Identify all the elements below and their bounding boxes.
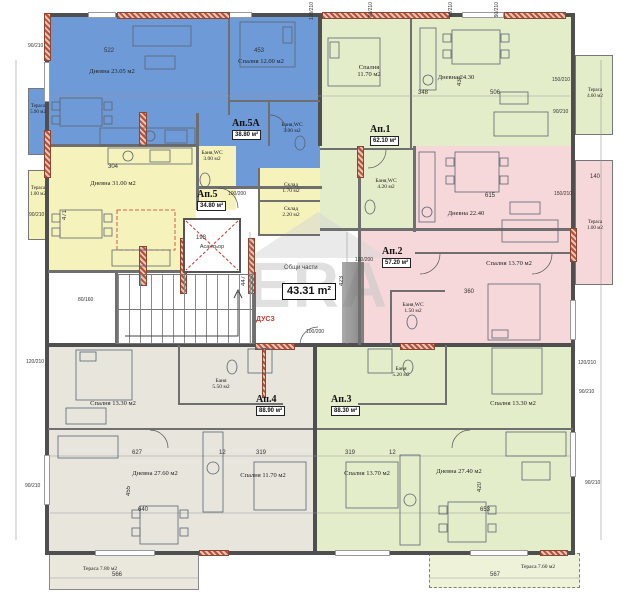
apartment-area-ap4: 88.90 м² — [256, 406, 285, 416]
room-label: Баня,WC 3.00 м2 — [192, 150, 232, 163]
wall-segment — [445, 345, 447, 405]
dimension-label: 90/210 — [25, 484, 40, 489]
dimension-label: 615 — [485, 193, 495, 199]
dimension-label: 420 — [477, 482, 483, 492]
brick-pier — [199, 550, 229, 556]
room-label: Спалня 13.30 м2 — [482, 400, 544, 407]
apartment-label-ap5a: Ап.5А — [232, 118, 260, 129]
room-label: Дневна 22.40 — [438, 210, 494, 217]
region-ap3-terrace — [429, 553, 580, 588]
wall-segment — [178, 345, 180, 405]
room-label: Тераса 4.60 м2 — [582, 88, 608, 100]
region-ap4-main — [45, 345, 315, 553]
common-area-value: 43.31 m² — [282, 283, 336, 300]
brick-pier — [262, 348, 266, 398]
dimension-label: 455 — [126, 486, 132, 496]
wall-segment — [48, 428, 313, 430]
brick-pier — [255, 343, 295, 350]
dimension-label: 150/210 — [554, 192, 572, 197]
dimension-label: 100/200 — [306, 330, 324, 335]
dimension-label: 566 — [112, 572, 122, 578]
dimension-label: 140 — [590, 174, 600, 180]
elevator-label: Асансьор — [185, 244, 239, 250]
window-opening — [570, 432, 576, 477]
wall-segment — [258, 200, 320, 202]
wall-segment — [320, 148, 415, 150]
wall-segment — [230, 100, 320, 102]
room-label: Спалня 11.70 м2 — [348, 64, 390, 79]
room-label: Дневна 27.60 м2 — [124, 470, 186, 477]
brick-pier — [117, 12, 230, 19]
room-label: Дневна 27.40 м2 — [428, 468, 490, 475]
dimension-label: 522 — [104, 48, 114, 54]
apartment-area-ap5a: 38.80 м² — [232, 130, 261, 140]
dimension-label: 319 — [256, 450, 266, 456]
brick-pier — [44, 13, 51, 61]
wall-segment — [48, 144, 198, 147]
wall-segment — [258, 168, 260, 236]
region-ap5-main — [48, 146, 196, 272]
window-opening — [470, 550, 528, 556]
brick-pier — [504, 12, 566, 19]
room-label: Тераса 5.90 м2 — [27, 104, 49, 116]
apartment-label-ap3: Ап.3 — [331, 394, 351, 405]
wall-segment — [318, 13, 322, 146]
apartment-area-ap5: 34.80 м² — [197, 201, 226, 211]
room-label: Баня,WC 1.50 м2 — [394, 302, 432, 315]
window-opening — [570, 300, 576, 340]
room-label: Спалня 12.00 м2 — [230, 58, 292, 65]
brick-pier — [44, 130, 51, 178]
dimension-label: 100/200 — [355, 258, 373, 263]
room-label: Дневна 31.00 м2 — [82, 180, 144, 187]
wall-segment — [268, 100, 270, 146]
room-label: Дневна 24.30 — [428, 74, 484, 81]
dimension-label: 434 — [457, 76, 463, 86]
brick-pier — [540, 550, 568, 556]
dimension-label: 198 — [196, 235, 206, 241]
room-label: Спалня 13.70 м2 — [336, 470, 398, 477]
room-label: Баня,WC 4.20 м2 — [366, 178, 406, 191]
room-label: Склад 2.20 м2 — [274, 206, 308, 219]
wall-segment — [390, 290, 392, 345]
dimension-label: 120/210 — [26, 360, 44, 365]
window-opening — [88, 12, 116, 18]
dimension-label: 90/210 — [579, 390, 594, 395]
dimension-label: 348 — [418, 90, 428, 96]
stair-landing-line — [118, 309, 252, 310]
room-label: Тераса 1.00 м2 — [27, 186, 49, 198]
room-label: Склад 1.70 м2 — [274, 182, 308, 195]
dimension-label: 453 — [254, 48, 264, 54]
wall-segment — [317, 428, 573, 430]
apartment-area-ap3: 88.30 м² — [331, 406, 360, 416]
dimension-label: 80/160 — [78, 298, 93, 303]
window-opening — [44, 62, 50, 102]
dimension-label: 12 — [219, 450, 226, 456]
dimension-label: 653 — [480, 507, 490, 513]
dimension-label: 640 — [138, 507, 148, 513]
dimension-label: 447 — [241, 276, 247, 286]
window-opening — [95, 550, 155, 556]
wall-segment — [390, 290, 445, 292]
room-label: Спалня 11.70 м2 — [232, 472, 294, 479]
dimension-label: 90/210 — [585, 481, 600, 486]
elevator-shaft: Асансьор — [183, 218, 241, 273]
apartment-label-ap5: Ап.5 — [197, 189, 217, 200]
brick-pier — [139, 112, 147, 146]
wall-segment — [410, 15, 412, 150]
room-label: Тераса 7.60 м2 — [508, 564, 568, 570]
room-label: Баня 5.20 м2 — [384, 366, 418, 379]
apartment-label-ap2: Ап.2 — [382, 246, 402, 257]
note-dusz: ДУСЗ — [256, 316, 275, 323]
dimension-label: 304 — [108, 164, 118, 170]
brick-pier — [322, 12, 450, 19]
dimension-label: 120/210 — [578, 361, 596, 366]
dimension-label: 506 — [490, 90, 500, 96]
dimension-label: 423 — [339, 276, 345, 286]
dimension-label: 12 — [389, 450, 396, 456]
apartment-label-ap4: Ап.4 — [256, 394, 276, 405]
apartment-area-ap1: 62.10 м² — [370, 136, 399, 146]
dimension-label: 120/210 — [310, 2, 315, 20]
room-label: Тераса 1.00 м2 — [582, 220, 608, 232]
room-label: Спалня 13.70 м2 — [478, 260, 540, 267]
dimension-label: 90/210 — [553, 110, 568, 115]
dimension-label: 150/210 — [552, 78, 570, 83]
wall-segment — [415, 252, 575, 254]
floor-plan: ERA — [0, 0, 623, 600]
dimension-label: 360 — [464, 289, 474, 295]
wall-segment — [358, 403, 447, 405]
region-ap2-main — [415, 146, 575, 345]
dimension-label: 90/210 — [369, 2, 374, 17]
apartment-area-ap2: 57.20 м² — [382, 258, 411, 268]
room-label: Баня,WC 3.00 м2 — [272, 122, 312, 135]
dimension-label: 471 — [62, 210, 68, 220]
brick-pier — [570, 228, 577, 262]
staircase — [117, 274, 253, 344]
brick-pier — [400, 343, 435, 350]
dimension-label: 567 — [490, 572, 500, 578]
dimension-label: 100/200 — [228, 192, 246, 197]
dimension-label: 90/210 — [495, 2, 500, 17]
dimension-label: 319 — [345, 450, 355, 456]
wall-segment — [313, 345, 317, 551]
room-label: Баня 5.50 м2 — [204, 378, 238, 391]
window-opening — [44, 455, 50, 505]
room-label: Спалня 13.30 м2 — [82, 400, 144, 407]
apartment-label-ap1: Ап.1 — [370, 124, 390, 135]
dimension-label: 90/210 — [29, 213, 44, 218]
wall-segment — [258, 234, 320, 236]
wall-segment — [413, 146, 416, 232]
window-opening — [335, 550, 390, 556]
common-area-label: Общи части — [284, 265, 318, 271]
brick-pier — [357, 146, 364, 178]
dimension-label: 627 — [132, 450, 142, 456]
dimension-label: 90/210 — [449, 2, 454, 17]
room-label: Дневна 23.05 м2 — [82, 68, 142, 75]
dimension-label: 90/210 — [28, 44, 43, 49]
wall-segment — [48, 270, 198, 273]
